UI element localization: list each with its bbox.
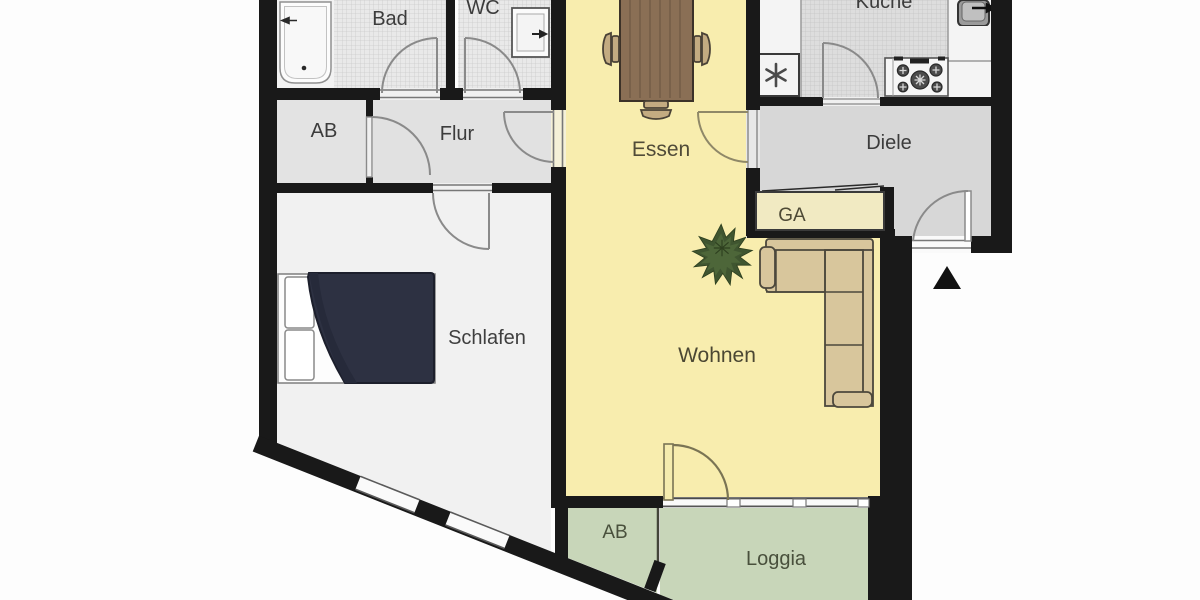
- svg-text:Loggia: Loggia: [746, 548, 807, 570]
- svg-text:AB: AB: [311, 120, 338, 142]
- svg-text:GA: GA: [778, 205, 806, 226]
- svg-text:AB: AB: [602, 522, 627, 543]
- svg-text:Küche: Küche: [856, 0, 913, 13]
- svg-text:Essen: Essen: [632, 138, 690, 161]
- svg-text:Diele: Diele: [866, 132, 912, 154]
- svg-text:WC: WC: [466, 0, 499, 19]
- svg-text:Flur: Flur: [440, 123, 475, 145]
- svg-text:Wohnen: Wohnen: [678, 344, 756, 367]
- svg-text:Schlafen: Schlafen: [448, 327, 526, 349]
- svg-text:Bad: Bad: [372, 8, 408, 30]
